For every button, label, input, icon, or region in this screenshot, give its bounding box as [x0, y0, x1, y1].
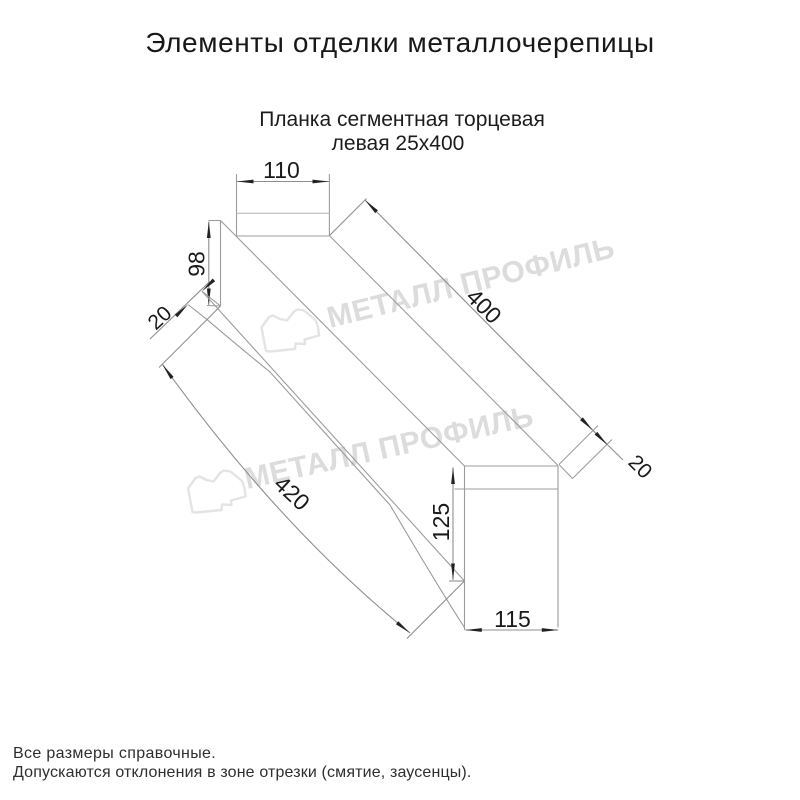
svg-text:Планка сегментная торцевая: Планка сегментная торцевая	[259, 108, 545, 131]
svg-text:Все размеры справочные.: Все размеры справочные.	[13, 745, 216, 762]
svg-text:Элементы отделки металлочерепи: Элементы отделки металлочерепицы	[145, 27, 654, 58]
svg-text:98: 98	[184, 251, 210, 277]
svg-text:левая 25х400: левая 25х400	[332, 132, 465, 155]
svg-text:Допускаются отклонения в зоне: Допускаются отклонения в зоне отрезки (с…	[13, 764, 472, 781]
svg-text:125: 125	[428, 503, 454, 541]
svg-text:110: 110	[263, 157, 300, 183]
svg-text:115: 115	[494, 606, 531, 632]
